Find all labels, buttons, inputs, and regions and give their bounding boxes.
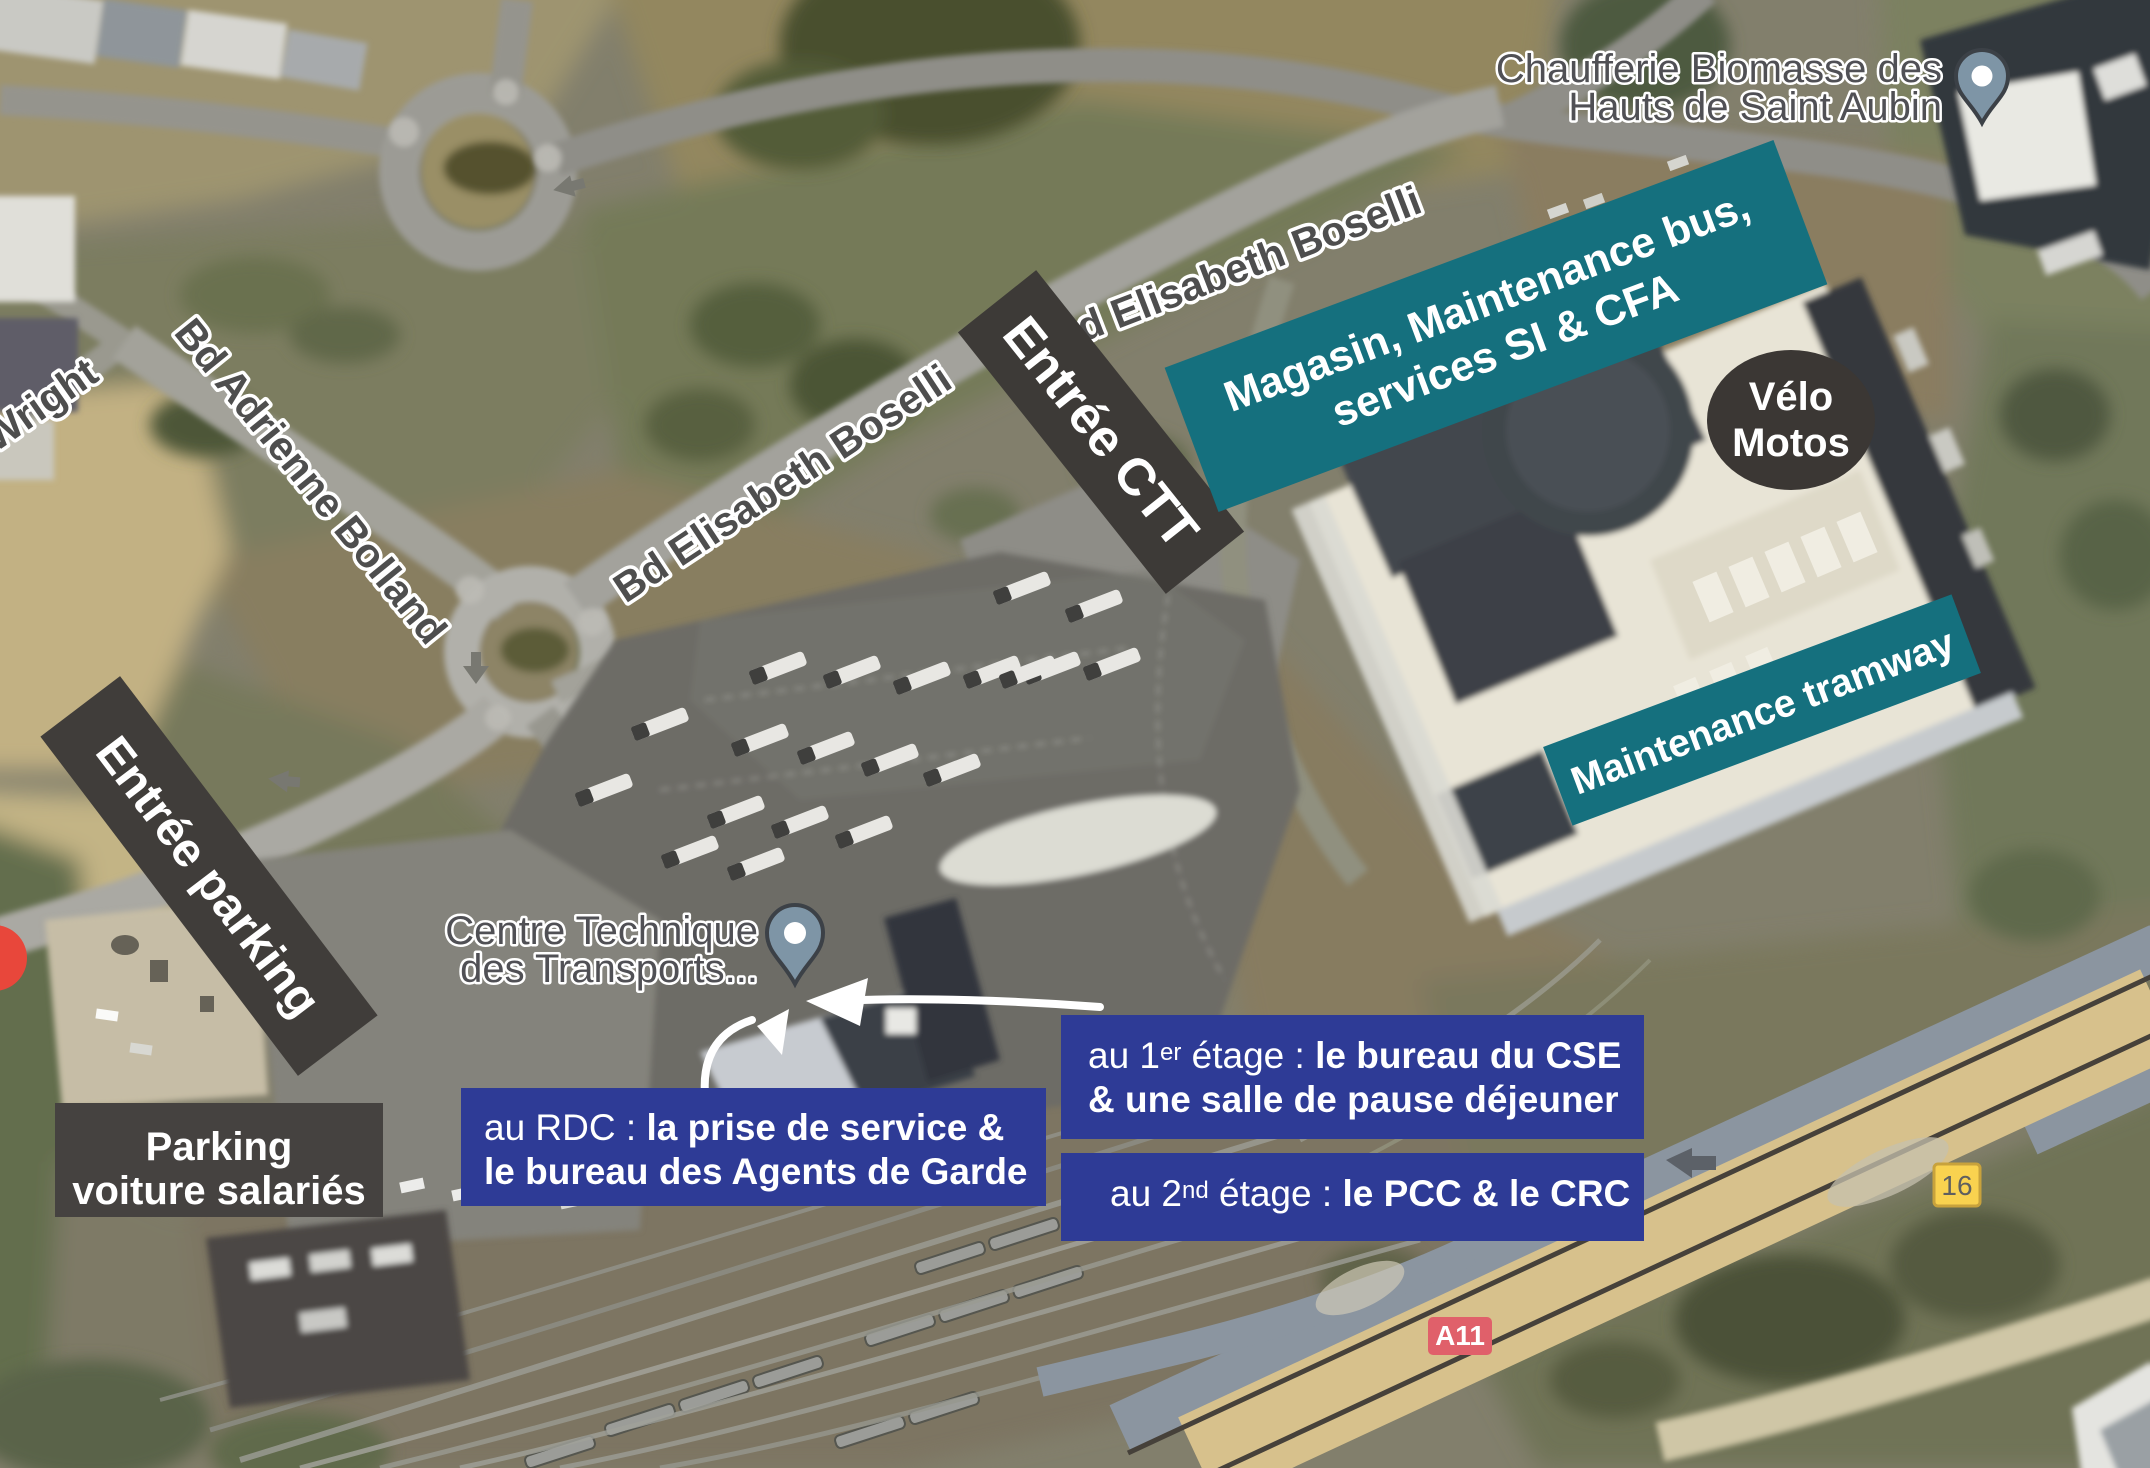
svg-text:voiture salariés: voiture salariés bbox=[72, 1169, 366, 1213]
svg-text:& une salle de pause déjeuner: & une salle de pause déjeuner bbox=[1088, 1079, 1619, 1120]
svg-text:Parking: Parking bbox=[146, 1125, 293, 1169]
svg-text:Vélo: Vélo bbox=[1749, 375, 1833, 419]
svg-text:Motos: Motos bbox=[1732, 421, 1850, 465]
svg-text:A11: A11 bbox=[1435, 1320, 1485, 1351]
svg-text:au RDC : la prise de service &: au RDC : la prise de service & bbox=[484, 1107, 1004, 1148]
svg-text:16: 16 bbox=[1941, 1170, 1972, 1201]
svg-text:le bureau des Agents de Garde: le bureau des Agents de Garde bbox=[484, 1151, 1028, 1192]
svg-text:Hauts de Saint Aubin: Hauts de Saint Aubin bbox=[1568, 85, 1942, 129]
svg-text:des Transports...: des Transports... bbox=[460, 947, 758, 991]
